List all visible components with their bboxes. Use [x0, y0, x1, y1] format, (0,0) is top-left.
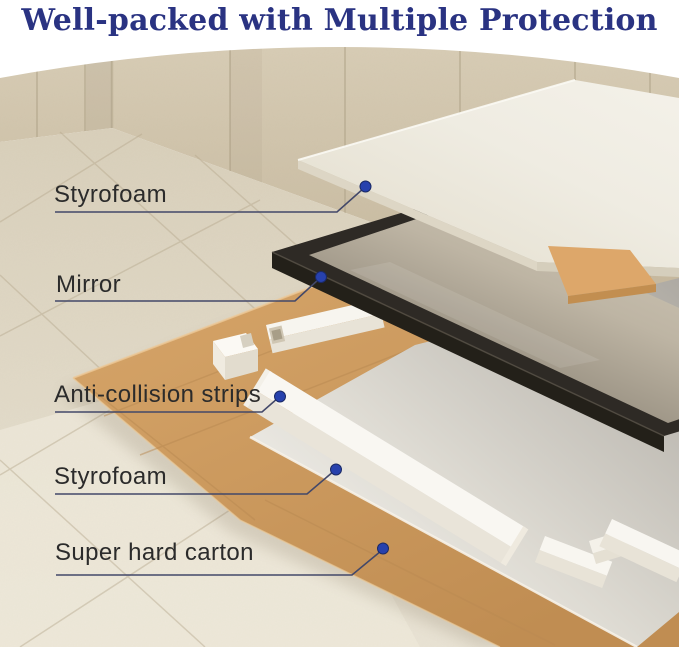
callout-dot-mirror — [316, 272, 327, 283]
callout-dot-strips — [275, 391, 286, 402]
label-styrofoam-top: Styrofoam — [54, 181, 167, 209]
label-anti-collision: Anti-collision strips — [54, 381, 261, 409]
callout-dot-styrofoam-top — [360, 181, 371, 192]
label-mirror: Mirror — [56, 271, 121, 299]
callout-dot-styrofoam-bottom — [331, 464, 342, 475]
page-title: Well-packed with Multiple Protection — [0, 0, 679, 44]
label-super-hard-carton: Super hard carton — [55, 539, 254, 567]
product-packaging-infographic: Well-packed with Multiple Protection Sty… — [0, 0, 679, 647]
callout-dot-carton — [378, 543, 389, 554]
label-styrofoam-bottom: Styrofoam — [54, 463, 167, 491]
